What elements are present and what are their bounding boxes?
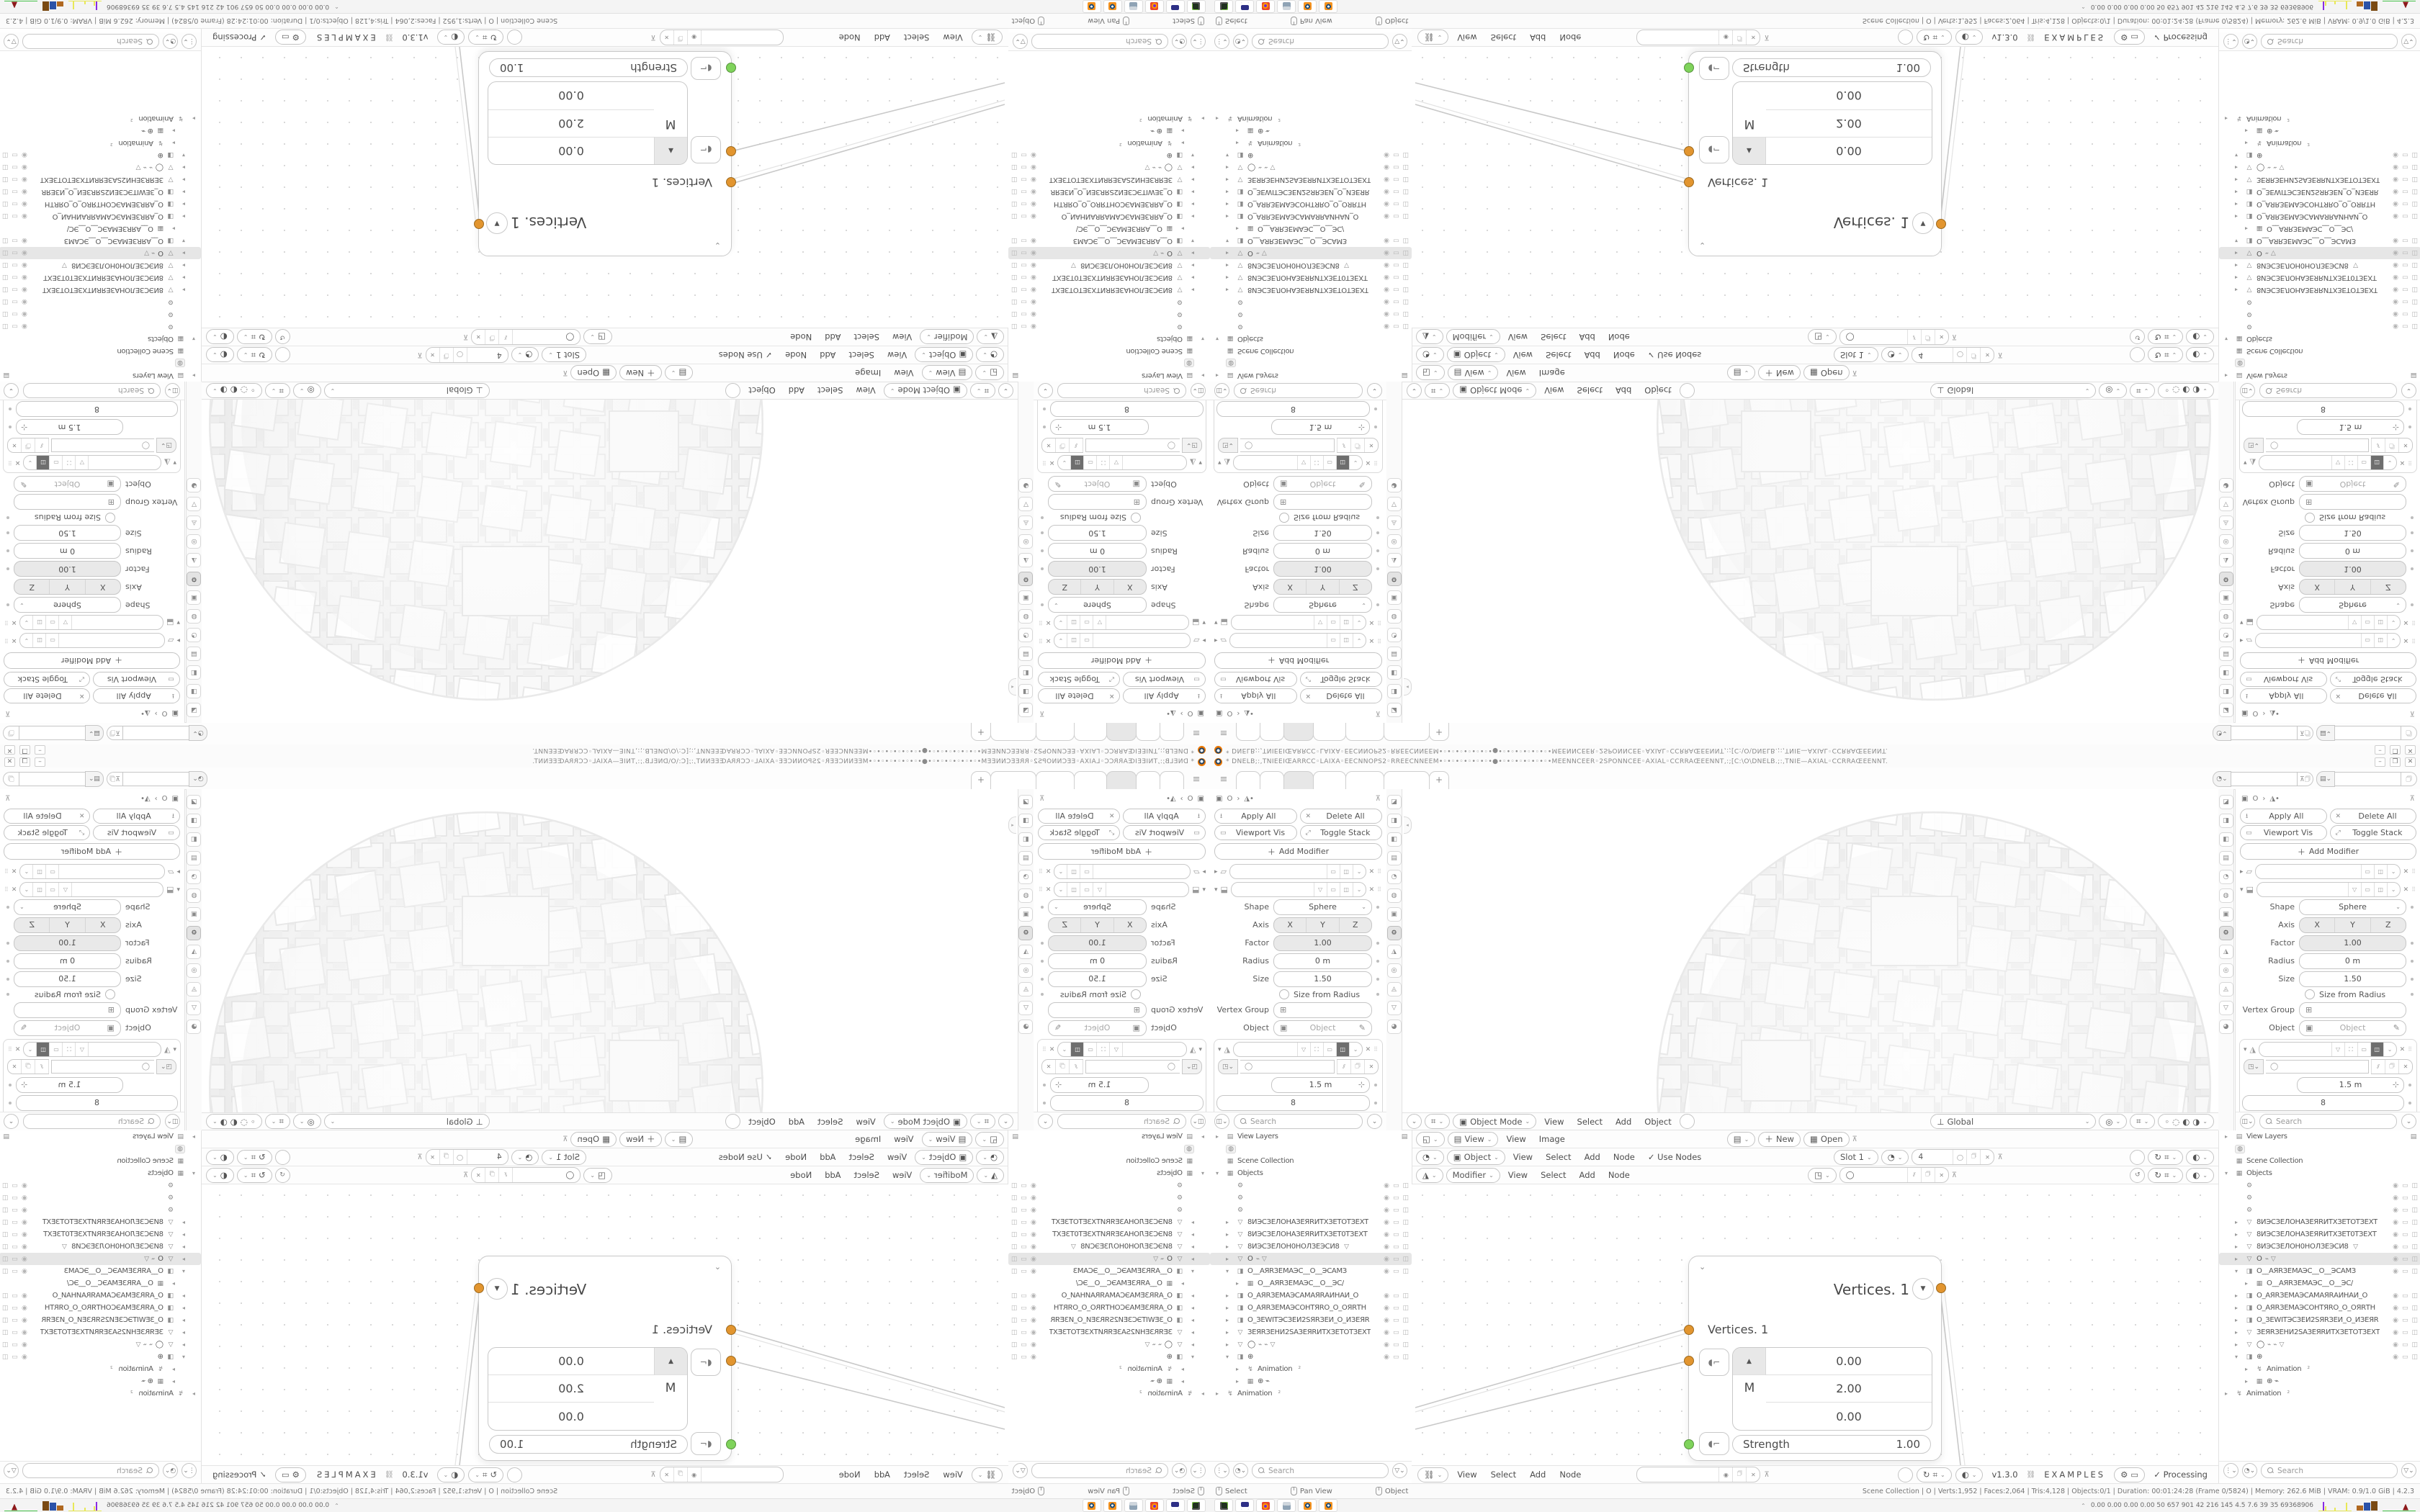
3d-viewport[interactable]: ◂ bbox=[202, 789, 1018, 1112]
render-disable-icon[interactable]: ◫ bbox=[1402, 1256, 1409, 1263]
render-disable-icon[interactable]: ◫ bbox=[1402, 1317, 1409, 1324]
render-disable-icon[interactable]: ◫ bbox=[2, 152, 9, 159]
menu-select[interactable]: Select bbox=[843, 1152, 879, 1162]
display-mode-icon[interactable]: ⋮⌄ bbox=[1214, 1463, 1229, 1478]
hide-icon[interactable]: ◉ bbox=[2393, 1317, 2398, 1324]
outliner-item[interactable]: ▸◨O_ЗЕWІТЭСЗЕИ2SЯRЗЕИ_О_ИЗЕЯR◉▭◫ bbox=[1210, 1314, 1412, 1326]
hide-icon[interactable]: ◉ bbox=[1031, 274, 1036, 282]
node-group-selector[interactable]: ◳⌄ ◯ ⫽🗇✕ bbox=[6, 436, 178, 454]
remove-modifier-icon[interactable]: ✕ bbox=[12, 637, 17, 644]
hide-icon[interactable]: ◉ bbox=[1384, 1243, 1389, 1251]
mode-dropdown[interactable]: ▣Object Mode⌄ bbox=[1453, 1114, 1536, 1129]
menu-view[interactable]: View bbox=[1539, 1117, 1569, 1127]
remove-modifier-icon[interactable]: ✕ bbox=[1369, 637, 1375, 644]
remove-modifier-icon[interactable]: ✕ bbox=[12, 868, 17, 876]
outliner-item[interactable]: ▸↯Animation² bbox=[2219, 1387, 2420, 1400]
render-disable-icon[interactable]: ◫ bbox=[1402, 287, 1409, 294]
options-icon[interactable]: ⌄ bbox=[4, 1114, 19, 1129]
snap-circle-icon[interactable] bbox=[1898, 1467, 1913, 1482]
menu-add[interactable]: Add bbox=[1610, 1117, 1636, 1127]
menu-add[interactable]: Add bbox=[1610, 386, 1636, 396]
outliner-item[interactable]: ▸▽8ИЭСЗЕЛОНАЗЕЯRИТХЗЕТ0ТЗЕХТ◉▭◫ bbox=[1210, 1228, 1412, 1241]
render-disable-icon[interactable]: ◫ bbox=[2411, 311, 2418, 318]
geonode-type-dropdown[interactable]: Modifier⌄ bbox=[1446, 1168, 1500, 1183]
axis-z-button[interactable]: Z bbox=[2370, 580, 2406, 595]
outliner-item[interactable]: ▸▽8ИЭСЗЕЛОНАЗЕЯRИТХЗЕТ0ТЗЕХТ◉▭◫ bbox=[1008, 1228, 1210, 1241]
viewport-disable-icon[interactable]: ▭ bbox=[1393, 1194, 1399, 1202]
properties-tab-icon-10[interactable]: ◎ bbox=[1019, 534, 1034, 549]
node-editor-canvas[interactable]: ⌄ Vertices. 1 ▼ Vertices. 1 ◖⌐ ▲ M 0.00 … bbox=[202, 47, 1008, 328]
delete-all-button[interactable]: ✕Delete All bbox=[1300, 809, 1383, 824]
output-socket-vertices[interactable] bbox=[474, 1283, 484, 1293]
hamburger-menu-icon[interactable]: ≡ bbox=[1216, 773, 1232, 786]
modifier-name-field[interactable]: ▭◫⌄ bbox=[1229, 633, 1366, 648]
viewport-disable-icon[interactable]: ▭ bbox=[12, 164, 19, 171]
vector-expand-button[interactable]: ▲ bbox=[1733, 1348, 1766, 1375]
properties-tab-icon-12[interactable]: ▽ bbox=[1387, 1001, 1402, 1015]
hide-icon[interactable]: ◉ bbox=[2393, 1243, 2398, 1251]
menu-object[interactable]: Object bbox=[743, 1117, 780, 1127]
viewport-disable-icon[interactable]: ▭ bbox=[1021, 1194, 1028, 1202]
nodegroup-name-field[interactable]: ◯⫽🗇✕ bbox=[1839, 1167, 1949, 1183]
viewport-disable-icon[interactable]: ▭ bbox=[2402, 1292, 2408, 1300]
objects-collection-row[interactable]: ▾▦ Objects bbox=[1008, 1167, 1210, 1179]
render-disable-icon[interactable]: ◫ bbox=[2411, 1194, 2418, 1202]
overlay-pill[interactable]: ◐⌄ bbox=[1955, 1467, 1984, 1482]
viewlayer-selector[interactable]: ▤⌄🗇 bbox=[2316, 726, 2417, 740]
viewport-disable-icon[interactable]: ▭ bbox=[1393, 1305, 1399, 1312]
mode-extra-icon[interactable] bbox=[1680, 1114, 1695, 1129]
display-mode-icon[interactable]: ⋮⌄ bbox=[181, 1463, 197, 1478]
hide-icon[interactable]: ◉ bbox=[1384, 1182, 1389, 1189]
hide-icon[interactable]: ◉ bbox=[1031, 176, 1036, 184]
menu-add[interactable]: Add bbox=[820, 1170, 846, 1180]
vertices-node[interactable]: ⌄ Vertices. 1 ▼ Vertices. 1 ◖⌐ ▲ M 0.00 … bbox=[478, 1256, 732, 1461]
properties-tab-icon-12[interactable]: ▽ bbox=[1019, 497, 1034, 511]
outliner-item[interactable]: ▸↯Animation² bbox=[2219, 1363, 2420, 1375]
viewport-disable-icon[interactable]: ▭ bbox=[2402, 1317, 2408, 1324]
render-disable-icon[interactable]: ◫ bbox=[2, 189, 9, 196]
viewport-disable-icon[interactable]: ▭ bbox=[2402, 1329, 2408, 1336]
filter-brush-icon[interactable]: ◔⌄ bbox=[2242, 34, 2257, 49]
remove-modifier-icon[interactable]: ✕ bbox=[1369, 886, 1375, 894]
return-icon[interactable]: ↺ bbox=[275, 1168, 290, 1183]
properties-tab-icon-4[interactable]: ▤ bbox=[2219, 647, 2233, 661]
outliner-item[interactable]: ▸◨O_AЯRЗЕМАЭСAMAЯRАИНАИ_О◉▭◫ bbox=[1210, 210, 1412, 222]
size-field[interactable]: 1.50 bbox=[1273, 971, 1372, 987]
render-disable-icon[interactable]: ◫ bbox=[1011, 1231, 1018, 1238]
filter-funnel-icon[interactable]: ▽⌄ bbox=[4, 1463, 19, 1478]
hide-icon[interactable]: ◉ bbox=[22, 238, 27, 245]
toolbar-flyout-handle[interactable]: ◂ bbox=[1404, 816, 1412, 834]
snap-pill[interactable]: ↻⌗⌄ bbox=[468, 1467, 503, 1482]
scene-collection-row[interactable]: ▦ Scene Collection bbox=[0, 1155, 201, 1167]
hide-icon[interactable]: ◉ bbox=[1384, 250, 1389, 257]
axis-z-button[interactable]: Z bbox=[1049, 918, 1081, 932]
render-disable-icon[interactable]: ◫ bbox=[2, 250, 9, 257]
viewport-disable-icon[interactable]: ▭ bbox=[1393, 164, 1399, 171]
menu-node[interactable]: Node bbox=[1554, 1470, 1586, 1480]
object-field[interactable]: ▣Object✎ bbox=[1048, 1020, 1147, 1036]
hide-icon[interactable]: ◉ bbox=[1384, 1305, 1389, 1312]
delete-all-button[interactable]: ✕Delete All bbox=[2330, 809, 2417, 824]
render-disable-icon[interactable]: ◫ bbox=[2411, 262, 2418, 269]
properties-tab-icon-7[interactable]: ▣ bbox=[187, 590, 202, 605]
outliner-item[interactable]: ▸◨O_AЯRЗЕМАЭСOHТЯRO_О_ОЯRТН◉▭◫ bbox=[2219, 198, 2420, 210]
render-disable-icon[interactable]: ◫ bbox=[1011, 201, 1018, 208]
render-disable-icon[interactable]: ◫ bbox=[1011, 1354, 1018, 1361]
node-count-field[interactable]: 8 bbox=[16, 402, 178, 418]
menu-select[interactable]: Select bbox=[812, 1117, 848, 1127]
menu-view[interactable]: View bbox=[1503, 1170, 1533, 1180]
nodegroup-name-field[interactable]: ◯⫽🗇✕ bbox=[471, 329, 581, 345]
render-disable-icon[interactable]: ◫ bbox=[1011, 299, 1018, 306]
snap-pill[interactable]: ↻⌗⌄ bbox=[237, 1168, 272, 1183]
firefox-taskbar-icon[interactable] bbox=[1256, 1499, 1275, 1512]
geonodes-modifier-header[interactable]: ▾◮ ▽⛶▭◫⌄ ✕⠿ bbox=[1040, 454, 1204, 471]
viewport-disable-icon[interactable]: ▭ bbox=[12, 1268, 19, 1275]
outliner-item[interactable]: ▸▽◯⌁ ⌁ ▽◉▭◫ bbox=[1008, 1338, 1210, 1351]
modifier-name-field[interactable]: ▽▭◫⌄ bbox=[2257, 615, 2401, 630]
outliner-item[interactable]: ▾◨⊕◉▭◫ bbox=[1008, 1351, 1210, 1363]
minimize-button[interactable]: – bbox=[2375, 757, 2385, 767]
shape-dropdown[interactable]: Sphere bbox=[2299, 598, 2406, 613]
pin-icon[interactable]: ⊼ bbox=[1997, 1153, 2002, 1161]
vertex-group-field[interactable]: ⊞ bbox=[1048, 495, 1147, 510]
modifier-header-2[interactable]: ▾⬓ ▽▭◫⌄ ✕⠿ bbox=[1034, 614, 1210, 632]
editor-type-button[interactable]: ⌗⌄ bbox=[970, 383, 995, 398]
outliner-item[interactable]: ▸▦O__AЯRЗЕМАЭС__O__ЭС/ bbox=[1210, 1277, 1412, 1290]
outliner-item[interactable]: ▸▽O⌁ ▽◉▭◫ bbox=[1210, 1253, 1412, 1265]
radius-field[interactable]: 0 m bbox=[1273, 544, 1372, 559]
viewport-disable-icon[interactable]: ▭ bbox=[1393, 1243, 1399, 1251]
viewport-disable-icon[interactable]: ▭ bbox=[2402, 1305, 2408, 1312]
render-disable-icon[interactable]: ◫ bbox=[2411, 1231, 2418, 1238]
viewport-disable-icon[interactable]: ▭ bbox=[2402, 238, 2408, 245]
render-disable-icon[interactable]: ◫ bbox=[1011, 311, 1018, 318]
render-disable-icon[interactable]: ◫ bbox=[1402, 299, 1409, 306]
properties-tab-icon-1[interactable]: ◪ bbox=[187, 795, 202, 809]
properties-tab-icon-5[interactable]: ◔ bbox=[2219, 870, 2233, 884]
render-disable-icon[interactable]: ◫ bbox=[2, 1354, 9, 1361]
radius-field[interactable]: 0 m bbox=[1048, 544, 1147, 559]
menu-add[interactable]: Add bbox=[1579, 1152, 1605, 1162]
render-disable-icon[interactable]: ◫ bbox=[2411, 323, 2418, 330]
outliner-item[interactable]: ▸◨O_AЯRЗЕМАЭСAMAЯRАИНАИ_О◉▭◫ bbox=[1008, 1290, 1210, 1302]
viewport-disable-icon[interactable]: ▭ bbox=[1021, 299, 1028, 306]
menu-view[interactable]: View bbox=[882, 1152, 912, 1162]
outliner-item[interactable]: ▸▽8ИЭСЗЕЛОНАЗЕЯRИТХЗЕТ0ТЗЕХТ◉▭◫ bbox=[0, 1228, 201, 1241]
viewport-disable-icon[interactable]: ▭ bbox=[12, 250, 19, 257]
outliner-search-input[interactable]: Search bbox=[1252, 34, 1389, 49]
strength-field[interactable]: Strength 1.00 bbox=[489, 58, 688, 77]
node-editor-type-button[interactable]: ⛓⌄ bbox=[972, 30, 1003, 45]
copy-icon[interactable]: 🗇 bbox=[3, 726, 19, 740]
node-count-field[interactable]: 8 bbox=[1050, 402, 1204, 418]
outliner-search-input[interactable]: Search bbox=[1252, 1463, 1389, 1478]
attribute-plug-icon[interactable]: ◖⌐ bbox=[691, 1349, 721, 1376]
hide-icon[interactable]: ◉ bbox=[1031, 1317, 1036, 1324]
add-modifier-button[interactable]: ＋Add Modifier bbox=[4, 843, 180, 860]
blender-taskbar-icon[interactable] bbox=[1298, 1499, 1317, 1512]
properties-tab-icon-6[interactable]: ◍ bbox=[187, 609, 202, 624]
hide-icon[interactable]: ◉ bbox=[1031, 1292, 1036, 1300]
geonode-editor-type-button[interactable]: ◮⌄ bbox=[1416, 330, 1443, 345]
radius-field[interactable]: 0 m bbox=[1048, 953, 1147, 969]
viewport-disable-icon[interactable]: ▭ bbox=[12, 1329, 19, 1336]
scene-collection-row[interactable]: ▦ Scene Collection bbox=[0, 345, 201, 357]
factor-slider[interactable]: 1.00 bbox=[1273, 562, 1372, 577]
pin-icon[interactable]: ⊼ bbox=[1997, 351, 2002, 359]
viewport-vis-button[interactable]: ▭Viewport Vis bbox=[2240, 825, 2327, 840]
object-field[interactable]: ▣Object✎ bbox=[2299, 477, 2406, 492]
terminal-taskbar-icon[interactable] bbox=[1187, 0, 1206, 13]
outliner-item[interactable]: ▸◨O_ЗЕWІТЭСЗЕИ2SЯRЗЕИ_О_ИЗЕЯR◉▭◫ bbox=[2219, 1314, 2420, 1326]
hide-icon[interactable]: ◉ bbox=[1031, 250, 1036, 257]
factor-slider[interactable]: 1.00 bbox=[14, 935, 121, 951]
hide-icon[interactable]: ◉ bbox=[1031, 1194, 1036, 1202]
objects-collection-row[interactable]: ▾▦ Objects bbox=[1008, 333, 1210, 345]
modifier-header-2[interactable]: ▾⬓ ▽▭◫⌄ ✕⠿ bbox=[1034, 880, 1210, 898]
menu-view[interactable]: View bbox=[889, 1134, 918, 1144]
outliner-item[interactable]: ▾◨O__AЯRЗЕМАЭС__O__ЭСАМЗ◉▭◫ bbox=[1008, 1265, 1210, 1277]
objects-collection-row[interactable]: ▾▦ Objects bbox=[0, 333, 201, 345]
vertices-node[interactable]: ⌄ Vertices. 1 ▼ Vertices. 1 ◖⌐ ▲ M 0.00 … bbox=[478, 51, 732, 256]
vector-expand-button[interactable]: ▲ bbox=[654, 1348, 687, 1375]
outliner-item[interactable]: ▸▽ЗЕЯRЗЕНИ2SАЗЕЯRИТХЗЕТОТЗЕХТ◉▭◫ bbox=[0, 1326, 201, 1338]
outliner-item[interactable]: ⚙◉▭◫ bbox=[1008, 308, 1210, 320]
blender-taskbar-icon[interactable] bbox=[1103, 1499, 1122, 1512]
menu-view[interactable]: View bbox=[1503, 332, 1533, 342]
render-disable-icon[interactable]: ◫ bbox=[1011, 323, 1018, 330]
menu-select[interactable]: Select bbox=[843, 350, 879, 360]
apply-all-button[interactable]: ⭳Apply All bbox=[2240, 688, 2327, 703]
hide-icon[interactable]: ◉ bbox=[2393, 1256, 2398, 1263]
render-disable-icon[interactable]: ◫ bbox=[2411, 299, 2418, 306]
size-field[interactable]: 1.50 bbox=[2299, 526, 2406, 541]
strength-field[interactable]: Strength 1.00 bbox=[1732, 1435, 1931, 1454]
hide-icon[interactable]: ◉ bbox=[2393, 274, 2398, 282]
workspace-tab-3[interactable] bbox=[1283, 771, 1314, 789]
menu-node[interactable]: Node bbox=[1603, 1170, 1635, 1180]
editor-type-button[interactable]: ⌗⌄ bbox=[1425, 383, 1450, 398]
modifier-name-field[interactable]: ▽▭◫⌄ bbox=[1054, 882, 1189, 897]
properties-tab-icon-13[interactable]: ◕ bbox=[2219, 1020, 2233, 1034]
hide-icon[interactable]: ◉ bbox=[1384, 1354, 1389, 1361]
node-count-field[interactable]: 8 bbox=[2242, 402, 2404, 418]
size-from-radius-toggle[interactable]: Size from Radius bbox=[1210, 511, 1386, 524]
hide-icon[interactable]: ◉ bbox=[22, 250, 27, 257]
objects-collection-row[interactable]: ▾▦ Objects bbox=[2219, 1167, 2420, 1179]
outliner-item[interactable]: ▸▽◯⌁ ⌁ ▽◉▭◫ bbox=[1210, 1338, 1412, 1351]
viewport-disable-icon[interactable]: ▭ bbox=[2402, 323, 2408, 330]
nodegroup-icon-pill[interactable]: ◳⌄ bbox=[583, 330, 612, 345]
hide-icon[interactable]: ◉ bbox=[1384, 299, 1389, 306]
viewport-disable-icon[interactable]: ▭ bbox=[12, 201, 19, 208]
node-title-dropdown[interactable]: ▼ bbox=[1912, 1278, 1934, 1300]
menu-select[interactable]: Select bbox=[1572, 1117, 1608, 1127]
modifier-name-field[interactable]: ▭◫⌄ bbox=[1054, 864, 1191, 879]
render-icon-row[interactable]: ◍ bbox=[1008, 357, 1210, 369]
scene-collection-row[interactable]: ▦ Scene Collection bbox=[2219, 1155, 2420, 1167]
properties-search-input[interactable]: Search bbox=[1057, 1114, 1186, 1129]
node-count-field[interactable]: 8 bbox=[16, 1095, 178, 1111]
tools-pill[interactable]: ⚙▭ bbox=[275, 1467, 306, 1482]
render-disable-icon[interactable]: ◫ bbox=[2, 1341, 9, 1349]
modifier-header-1[interactable]: ▸▱ ▭◫⌄ ✕⠿ bbox=[2236, 632, 2420, 650]
image-new-button[interactable]: ＋New bbox=[1758, 1132, 1801, 1147]
render-disable-icon[interactable]: ◫ bbox=[2, 274, 9, 282]
attribute-plug-icon[interactable]: ◖⌐ bbox=[691, 136, 721, 163]
view-layers-row[interactable]: ▸▤ View Layers▤ bbox=[2219, 1130, 2420, 1143]
vertex-group-field[interactable]: ⊞ bbox=[14, 1002, 121, 1018]
properties-tab-icon-11[interactable]: ◬ bbox=[2219, 516, 2233, 530]
render-icon-row[interactable]: ◍ bbox=[0, 357, 201, 369]
hide-icon[interactable]: ◉ bbox=[1384, 189, 1389, 196]
remove-modifier-icon[interactable]: ✕ bbox=[1366, 1046, 1371, 1053]
properties-tab-icon-10[interactable]: ◎ bbox=[187, 963, 202, 978]
outliner-item[interactable]: ▸▦⊕ ⌁ bbox=[0, 125, 201, 137]
render-disable-icon[interactable]: ◫ bbox=[2411, 1207, 2418, 1214]
outliner-item[interactable]: ▸◨O_AЯRЗЕМАЭСAMAЯRАИНАИ_О◉▭◫ bbox=[2219, 1290, 2420, 1302]
outliner-item[interactable]: ▸▽8ИЭСЗЕЛОНАЗЕЯRИТХЗЕТОТЗЕХТ◉▭◫ bbox=[0, 1216, 201, 1228]
outliner-item[interactable]: ⚙◉▭◫ bbox=[1210, 1179, 1412, 1192]
options-icon[interactable]: ⌄ bbox=[1038, 1114, 1053, 1129]
modifier-name-field[interactable]: ▽▭◫⌄ bbox=[19, 615, 163, 630]
render-disable-icon[interactable]: ◫ bbox=[1402, 1194, 1409, 1202]
render-disable-icon[interactable]: ◫ bbox=[1402, 213, 1409, 220]
render-disable-icon[interactable]: ◫ bbox=[2, 287, 9, 294]
hide-icon[interactable]: ◉ bbox=[22, 164, 27, 171]
viewport-disable-icon[interactable]: ▭ bbox=[1393, 1317, 1399, 1324]
hide-icon[interactable]: ◉ bbox=[1384, 262, 1389, 269]
node-title-dropdown[interactable]: ▼ bbox=[1912, 212, 1934, 234]
viewport-disable-icon[interactable]: ▭ bbox=[1021, 238, 1028, 245]
hide-icon[interactable]: ◉ bbox=[2393, 1182, 2398, 1189]
viewport-disable-icon[interactable]: ▭ bbox=[1021, 311, 1028, 318]
maximize-button[interactable]: ❐ bbox=[2390, 757, 2401, 767]
outliner-item[interactable]: ⚙◉▭◫ bbox=[0, 320, 201, 333]
toggle-stack-button[interactable]: ⤢Toggle Stack bbox=[1038, 672, 1121, 687]
outliner-item[interactable]: ▾◨O__AЯRЗЕМАЭС__O__ЭСАМЗ◉▭◫ bbox=[1210, 235, 1412, 247]
modifier-name-field[interactable]: ▽⛶▭◫⌄ bbox=[1233, 1042, 1363, 1057]
menu-view[interactable]: View bbox=[938, 1470, 967, 1480]
snap-circle-icon[interactable] bbox=[2130, 348, 2145, 363]
add-modifier-button[interactable]: ＋Add Modifier bbox=[1038, 843, 1206, 860]
properties-tab-icon-1[interactable]: ◪ bbox=[1019, 795, 1034, 809]
properties-search-input[interactable]: Search bbox=[23, 383, 161, 398]
proportional-edit-pill[interactable]: ⌗⌄ bbox=[2130, 383, 2155, 398]
properties-tab-icon-8[interactable]: ⚙ bbox=[187, 926, 202, 940]
vector-x-field[interactable]: 0.00 bbox=[488, 1348, 654, 1375]
outliner-item[interactable]: ▸▽◯⌁ ⌁ ▽◉▭◫ bbox=[1008, 161, 1210, 174]
properties-tab-icon-13[interactable]: ◕ bbox=[1019, 1020, 1034, 1034]
viewport-disable-icon[interactable]: ▭ bbox=[2402, 152, 2408, 159]
properties-tab-icon-6[interactable]: ◍ bbox=[1387, 888, 1402, 903]
hide-icon[interactable]: ◉ bbox=[1384, 176, 1389, 184]
properties-tab-icon-1[interactable]: ◪ bbox=[1387, 703, 1402, 717]
use-nodes-checkbox[interactable]: ✓ Use Nodes bbox=[1643, 350, 1706, 360]
hide-icon[interactable]: ◉ bbox=[22, 1268, 27, 1275]
apply-all-button[interactable]: ⭳Apply All bbox=[1214, 688, 1297, 703]
render-disable-icon[interactable]: ◫ bbox=[2, 1243, 9, 1251]
render-disable-icon[interactable]: ◫ bbox=[1402, 1305, 1409, 1312]
snap-pill[interactable]: ↻⌗⌄ bbox=[2148, 1168, 2183, 1183]
close-button[interactable]: ✕ bbox=[2405, 746, 2416, 755]
menu-view[interactable]: View bbox=[1501, 368, 1531, 378]
viewport-disable-icon[interactable]: ▭ bbox=[1021, 287, 1028, 294]
properties-tab-icon-2[interactable]: ◨ bbox=[1019, 684, 1034, 698]
viewport-disable-icon[interactable]: ▭ bbox=[12, 1305, 19, 1312]
viewport-disable-icon[interactable]: ▭ bbox=[1021, 152, 1028, 159]
texture-editor-type-button[interactable]: ◔⌄ bbox=[1416, 348, 1444, 363]
calculator-taskbar-icon[interactable] bbox=[1277, 1499, 1296, 1512]
outliner-item[interactable]: ▸▽8ИЭСЗЕЛОНАЗЕЯRИТХЗЕТ0ТЗЕХТ◉▭◫ bbox=[0, 271, 201, 284]
viewport-disable-icon[interactable]: ▭ bbox=[1393, 323, 1399, 330]
nodetree-name-field[interactable]: ◉🗇✕ bbox=[1636, 1467, 1760, 1482]
viewport-disable-icon[interactable]: ▭ bbox=[1393, 189, 1399, 196]
input-socket-vector[interactable] bbox=[1684, 146, 1694, 156]
snapping-pill[interactable]: ◎⌄ bbox=[2099, 1114, 2127, 1129]
filter-icon[interactable]: ◫⌄ bbox=[1214, 383, 1229, 398]
outliner-item[interactable]: ⚙◉▭◫ bbox=[1210, 1192, 1412, 1204]
outliner-item[interactable]: ▸▽◯⌁ ⌁ ▽◉▭◫ bbox=[2219, 1338, 2420, 1351]
properties-tab-icon-12[interactable]: ▽ bbox=[2219, 497, 2233, 511]
node-editor-canvas[interactable]: ⌄ Vertices. 1 ▼ Vertices. 1 ◖⌐ ▲ M 0.00 … bbox=[1412, 1184, 2218, 1465]
menu-view[interactable]: View bbox=[882, 350, 912, 360]
properties-tab-icon-8[interactable]: ⚙ bbox=[2219, 926, 2233, 940]
properties-tab-icon-10[interactable]: ◎ bbox=[1019, 963, 1034, 978]
render-icon-row[interactable]: ◍ bbox=[1210, 357, 1412, 369]
render-disable-icon[interactable]: ◫ bbox=[1011, 1219, 1018, 1226]
node-editor-type-button[interactable]: ⛓⌄ bbox=[972, 1467, 1003, 1482]
geonodes-modifier-header[interactable]: ▾◮ ▽⛶▭◫⌄ ✕⠿ bbox=[6, 1041, 178, 1058]
remove-modifier-icon[interactable]: ✕ bbox=[1049, 459, 1055, 467]
outliner-item[interactable]: ▸◨O_AЯRЗЕМАЭСOHТЯRO_О_ОЯRТН◉▭◫ bbox=[1210, 198, 1412, 210]
menu-view[interactable]: View bbox=[1452, 32, 1482, 42]
properties-tab-icon-13[interactable]: ◕ bbox=[187, 1020, 202, 1034]
pin-icon[interactable]: ⊼ bbox=[650, 34, 655, 42]
hide-icon[interactable]: ◉ bbox=[2393, 213, 2398, 220]
hide-icon[interactable]: ◉ bbox=[2393, 1194, 2398, 1202]
apply-all-button[interactable]: ⭳Apply All bbox=[94, 809, 181, 824]
properties-tab-icon-1[interactable]: ◪ bbox=[2219, 795, 2233, 809]
vector-x-field[interactable]: 0.00 bbox=[1766, 137, 1932, 164]
outliner-item[interactable]: ⚙◉▭◫ bbox=[1210, 308, 1412, 320]
render-disable-icon[interactable]: ◫ bbox=[1011, 1207, 1018, 1214]
outliner-search-input[interactable]: Search bbox=[2261, 34, 2398, 49]
filter-funnel-icon[interactable]: ▽⌄ bbox=[4, 34, 19, 49]
toggle-stack-button[interactable]: ⤢Toggle Stack bbox=[4, 672, 91, 687]
menu-select[interactable]: Select bbox=[1486, 32, 1521, 42]
properties-tab-icon-6[interactable]: ◍ bbox=[1019, 888, 1034, 903]
hide-icon[interactable]: ◉ bbox=[2393, 201, 2398, 208]
properties-tab-icon-9[interactable]: ◮ bbox=[187, 945, 202, 959]
filter-brush-icon[interactable]: ◔⌄ bbox=[1172, 34, 1187, 49]
snap-pill[interactable]: ↻⌗⌄ bbox=[237, 1150, 272, 1165]
remove-modifier-icon[interactable]: ✕ bbox=[2403, 637, 2409, 644]
node-group-selector[interactable]: ◳⌄ ◯ ⫽🗇✕ bbox=[2242, 436, 2414, 454]
outliner-item[interactable]: ▸▽8ИЭСЗЕЛОН0НОЛЗЕЭСИ8▽◉▭◫ bbox=[0, 1241, 201, 1253]
viewport-disable-icon[interactable]: ▭ bbox=[1021, 1231, 1028, 1238]
node-title-dropdown[interactable]: ▼ bbox=[486, 1278, 508, 1300]
outliner-item[interactable]: ▸▦O__AЯRЗЕМАЭС__O__ЭС/ bbox=[1008, 222, 1210, 235]
outliner-item[interactable]: ▸▽◯⌁ ⌁ ▽◉▭◫ bbox=[0, 1338, 201, 1351]
hide-icon[interactable]: ◉ bbox=[1384, 1219, 1389, 1226]
properties-tab-icon-8[interactable]: ⚙ bbox=[1019, 926, 1034, 940]
menu-view[interactable]: View bbox=[1501, 1134, 1531, 1144]
render-disable-icon[interactable]: ◫ bbox=[1011, 238, 1018, 245]
